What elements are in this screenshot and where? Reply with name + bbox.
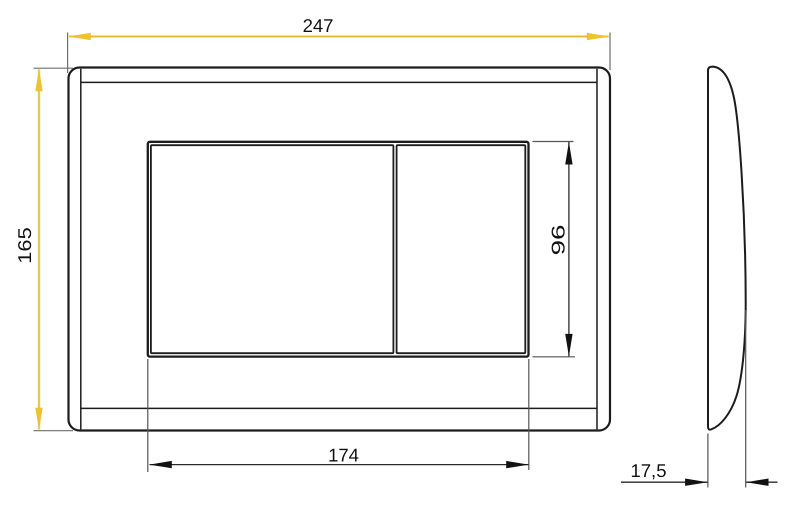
- svg-text:17,5: 17,5: [630, 460, 666, 481]
- svg-text:247: 247: [303, 15, 334, 36]
- svg-text:96: 96: [548, 225, 569, 256]
- svg-text:165: 165: [14, 227, 35, 263]
- svg-text:174: 174: [328, 445, 359, 466]
